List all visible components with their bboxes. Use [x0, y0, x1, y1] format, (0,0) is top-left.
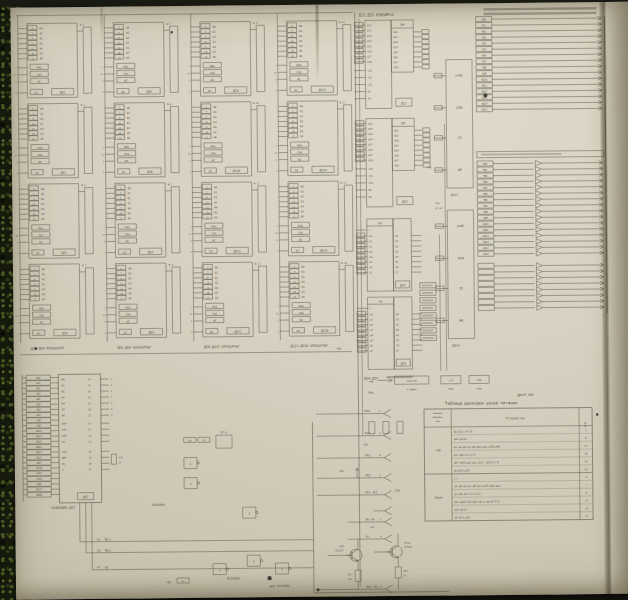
pin-label: АД0	[36, 377, 41, 380]
ctrl-label: ВИР	[62, 435, 67, 438]
ctrl-row-label: CE	[459, 286, 463, 290]
di-pin-label: DI	[36, 172, 40, 175]
resistor-value: 15к	[348, 578, 353, 581]
chip-Д516: 5А07А16А212А311А410А513А64RAS15CAS3WE2DI…	[275, 261, 353, 336]
ctrl-pin-label: WE	[212, 240, 216, 243]
pin-label: А5	[127, 132, 131, 135]
pin-number: 2	[190, 251, 192, 254]
table-cell-device: Д44-Д516	[454, 438, 467, 441]
pin-label: АД15	[36, 456, 42, 459]
pin-number: 2	[15, 92, 17, 95]
pin-label: А3	[299, 40, 303, 43]
pin-label: D5	[369, 261, 373, 264]
pin-label: АД3	[36, 393, 41, 396]
pin-label: АД8	[36, 419, 41, 422]
ctrl-row-label: WE	[459, 318, 463, 322]
pin-number: 2	[103, 171, 105, 174]
ctrl-pin-label: RAS	[37, 67, 42, 70]
signal-label: АД4	[482, 42, 487, 45]
pin-number: 19	[97, 548, 101, 552]
capacitor-value: 43мк	[476, 387, 482, 390]
pin-label: А2	[299, 35, 303, 38]
table-cell-contact: 24	[584, 460, 588, 463]
memory-group-1: 5А07А16А212А311А410А513А64RAS15CAS3WE2DI…	[13, 15, 94, 351]
ctrl-pin-label: WE	[212, 159, 216, 162]
ctrl-pin-label: CAS	[298, 232, 303, 235]
xt8-label: ХТ8	[435, 202, 440, 205]
pin-label: А0	[39, 27, 43, 30]
pin-number: 4	[103, 146, 105, 149]
pin-label: D7	[370, 350, 374, 353]
chip-designator: Д513	[319, 88, 326, 92]
clock-pin: С	[369, 229, 371, 232]
pin-number: 2	[16, 172, 18, 175]
ctrl-pin-label: RAS	[299, 305, 304, 308]
pin-number: 4	[16, 147, 18, 150]
chip-Д515: 5А07А16А212А311А410А513А64RAS15CAS3WE2DI…	[275, 181, 353, 256]
transistor-type: КТ315Г	[335, 549, 344, 552]
conn-number: 3	[111, 390, 113, 393]
pin-number: 3	[104, 321, 106, 324]
pin-label: А1	[301, 271, 305, 274]
ctrl-label: ВС	[62, 463, 66, 466]
ctrl-pin-label: CAS	[126, 314, 131, 317]
pin-label: АД6	[36, 409, 41, 412]
memory-group-3: 5А07А16А212А311А410А513А64RAS15CAS3WE2DI…	[187, 13, 268, 349]
pin-number: 3	[277, 319, 279, 322]
pin-label: СИНХ	[36, 478, 42, 481]
pin-label: Q1	[395, 240, 398, 243]
pin-label: А6	[126, 57, 130, 60]
pin-number: 3	[103, 160, 105, 163]
table-header: Устройство	[505, 416, 524, 420]
bus-number: № 3	[82, 184, 87, 187]
di-pin-label: DI	[209, 170, 213, 173]
pin-label: DO8	[394, 66, 399, 69]
pin-label: Q4	[396, 334, 399, 337]
table-header: ния	[436, 420, 441, 423]
ctrl-pin-label: WE	[127, 321, 131, 324]
io-buf-line-РД9: РД9	[477, 214, 603, 221]
pin-label: А3	[39, 42, 43, 45]
io-line-АД4: АД4	[476, 39, 602, 45]
pin-label: А6	[301, 216, 305, 219]
table-cell-contact: 12	[585, 499, 589, 502]
table-cell-contact: 14	[584, 445, 588, 448]
pin-label: Q5	[395, 261, 398, 264]
pin-label: АД4	[36, 398, 41, 401]
pin-number: 33	[88, 428, 91, 431]
pin-number: 2	[18, 333, 20, 336]
common-label: Общ.	[368, 391, 374, 395]
table-cell-device: Д51-Д516	[455, 508, 468, 511]
connector-signal-label: Вкл.чб1	[366, 585, 378, 589]
table-cell-device: Е3	[454, 477, 458, 480]
io-buf-line-РД12: РД12	[478, 232, 604, 239]
chip-Д51: 5А07А16А212А311А410А513А64RAS15CAS3WE2DI…	[13, 23, 91, 98]
bus-number: № 6	[167, 103, 172, 106]
pin-label: А4	[42, 288, 46, 291]
pin-label: АД9	[36, 424, 41, 427]
pin-number: 3	[103, 241, 105, 244]
ctrl-pin-label: CS1	[367, 76, 372, 79]
pin-label: А5	[41, 213, 45, 216]
chip-Д513: 5А07А16А212А311А410А513А64RAS15CAS3WE2DI…	[273, 20, 351, 95]
transistor-designator: VT10	[404, 542, 411, 545]
pin-label: А6	[40, 58, 44, 61]
plus5v-label: +5В	[363, 444, 368, 447]
pin-label: DO4	[393, 46, 398, 49]
pin-label: Q0	[395, 235, 398, 238]
pin-label: А0	[61, 378, 65, 381]
pin-label: А0	[42, 268, 46, 271]
capacitor-name: С50	[477, 379, 482, 382]
ctrl-pin-label: EW	[369, 196, 373, 199]
pin-label: А1	[127, 192, 131, 195]
gate-symbol: 1	[248, 512, 250, 516]
pin-label: DO3	[393, 41, 398, 44]
pin-label: D0	[369, 235, 373, 238]
pin-label: D1	[370, 318, 374, 321]
pin-label: D7	[369, 272, 373, 275]
chip-Д53: 5А07А16А212А311А410А513А64RAS15CAS3WE2DI…	[15, 183, 93, 258]
bus-number: № 1	[80, 23, 85, 26]
pin-label: D1	[369, 240, 373, 243]
ctrl-pin-label: CS1	[368, 175, 373, 178]
ctrl-pin-label: CAS	[297, 151, 302, 154]
signal-label: РД6	[483, 199, 488, 202]
pin-label: А5	[128, 293, 132, 296]
capacitor-name: С49	[449, 379, 454, 382]
chip-designator: Д52	[61, 171, 67, 175]
pin-label: А2	[213, 36, 217, 39]
pin-number: 15	[187, 72, 190, 75]
signal-label: АД7	[482, 60, 487, 63]
chip-Д54: 5А07А16А212А311А410А513А64RAS15CAS3WE2DI…	[16, 264, 94, 339]
pin-number: 2	[191, 331, 193, 334]
pin-label: DO2	[394, 134, 399, 137]
pin-label: А3	[128, 202, 132, 205]
chip-designator: Д24	[400, 283, 406, 287]
ctrl-pin-label: WE	[125, 160, 129, 163]
capacitor-value: 0,068мк	[407, 388, 418, 391]
pin-number: 3	[15, 81, 17, 84]
misc-label: РС-Р4	[435, 207, 443, 210]
connector-signal-label: РЕЗ	[365, 431, 370, 435]
pin-label: DI5	[367, 45, 372, 48]
pin-label: А3	[301, 281, 305, 284]
bus-number: № 4	[82, 264, 87, 267]
table-header: Конт.	[584, 420, 587, 427]
gate-symbol: 1	[190, 462, 192, 466]
pin-label: DO1	[394, 129, 399, 132]
pin-label: D2	[369, 245, 373, 248]
pin-number: 47	[97, 566, 101, 570]
pin-label: А4	[213, 126, 217, 129]
ctrl-pin-label: CAS	[124, 153, 129, 156]
pin-number: 23	[88, 402, 91, 405]
io-buf-line-РД8: РД8	[477, 208, 603, 215]
pin-number: 37	[89, 468, 92, 471]
pin-label: А6	[214, 216, 218, 219]
di-pin-label: DI	[35, 92, 39, 95]
ctrl-pin-label: CLR	[367, 69, 372, 72]
chip-designator: Д22	[401, 101, 407, 105]
pin-label: А2	[300, 115, 304, 118]
pin-label: АД12	[36, 440, 42, 443]
chip-designator: Д56	[147, 170, 153, 174]
di-pin-label: DI	[122, 171, 126, 174]
table-cell-contact: 7	[585, 484, 587, 487]
cpu-caption: К1801ВМ1-Д27	[51, 506, 75, 510]
pin-number: 4	[104, 307, 106, 310]
ctrl-row-label: CE	[458, 136, 462, 140]
pin-number: 25	[88, 414, 91, 417]
pin-number: 2	[102, 91, 104, 94]
pin-label: А6	[41, 218, 45, 221]
chip-designator: Д511	[234, 249, 241, 253]
io-line-АД0: АД0	[476, 15, 602, 21]
pin-label: А3	[41, 203, 45, 206]
func-label: INP	[400, 24, 405, 27]
di-pin-label: DI	[36, 252, 40, 255]
chip-designator: Д518	[453, 344, 460, 348]
pin-label: А2	[214, 196, 218, 199]
signal-label: РД10	[483, 223, 489, 226]
table-cell-device: Д2,Д11,Е4-Е9	[454, 430, 473, 433]
pin-label: А6	[62, 415, 66, 418]
pin-label: А5	[301, 211, 305, 214]
io-buf-line-x7	[478, 304, 604, 311]
signal-label: РД8	[483, 211, 488, 214]
paper-crease-2	[100, 7, 102, 47]
pin-label: А5	[62, 409, 66, 412]
cpu-block: АД0АД1АД2АД3АД4АД5АД6АД7АД8АД9АД10АД11АД…	[22, 372, 314, 570]
pin-label: А6	[299, 55, 303, 58]
pin-number: 2	[104, 252, 106, 255]
io-line-АД14: АД14	[476, 100, 602, 106]
bus-number: № 10	[253, 102, 259, 105]
pin-label: А6	[127, 137, 131, 140]
memory-group-caption: Д513-Д516 КР565РУ6Г	[290, 344, 328, 348]
pin-number: 42	[88, 440, 91, 443]
pin-number: 4	[103, 227, 105, 230]
signal-label: ТШ	[104, 565, 108, 569]
ctrl-pin-label: CLR	[368, 168, 373, 171]
pin-number: 4	[18, 308, 20, 311]
bus-number: № 8	[169, 263, 174, 266]
ctrl-pin-label: WE	[38, 81, 42, 84]
signal-label: РД5	[483, 193, 488, 196]
signal-label: АД5	[482, 48, 487, 51]
di-pin-label: DI	[37, 333, 41, 336]
plus5v-label: +5В	[368, 379, 373, 383]
resistor-label: R57	[348, 573, 353, 576]
pin-label: А4	[127, 127, 131, 130]
bus-number: № 9	[253, 22, 258, 25]
pin-label: А0	[213, 106, 217, 109]
pin-label: А4	[62, 403, 66, 406]
pin-number: 3	[17, 241, 19, 244]
pin-number: 4	[15, 67, 17, 70]
pin-label: А2	[39, 37, 43, 40]
logic-caption: К155ЛН3	[227, 576, 240, 580]
io-line-АД10: АД10	[476, 76, 602, 82]
pin-label: А3	[42, 283, 46, 286]
pin-number: 4	[277, 305, 279, 308]
ctrl-row-label: SYNC	[457, 224, 465, 228]
signal-label: РД3	[483, 181, 488, 184]
bus-number: № 13	[339, 21, 345, 24]
ctrl-label: ОЕ	[62, 441, 66, 444]
memory-group-2: 5А07А16А212А311А410А513А64RAS15CAS3WE2DI…	[100, 14, 181, 350]
connector-signal-label: Вн.чб	[366, 517, 375, 521]
table-cell-device: Д1,Д3,Д5-Д7,Д9-Д14,Д19,Д20,Д44	[454, 485, 501, 488]
pin-label: АД13	[36, 446, 42, 449]
pin-number: 2	[276, 170, 278, 173]
conn-number: 5	[111, 402, 113, 405]
pin-label: А1	[213, 111, 217, 114]
pin-label: А0	[214, 186, 218, 189]
pin-number: 4	[188, 65, 190, 68]
pin-label: DO8	[394, 165, 399, 168]
part-label: R16	[188, 439, 193, 442]
connector-signal-label: РЕЗ	[365, 453, 370, 457]
plus5v-label: +5В	[339, 470, 344, 473]
io-buf-line-x4	[478, 286, 604, 293]
io-buf-line-РД1: РД1	[477, 166, 603, 173]
signal-label: АД14	[482, 102, 488, 105]
table-cell-contact: 16	[585, 507, 589, 510]
chip-designator: Д515	[320, 248, 327, 252]
pin-label: ВИР	[37, 462, 42, 465]
pin-label: АД7	[36, 414, 41, 417]
pin-label: DI7	[367, 56, 372, 59]
bus-number: № 5	[167, 23, 172, 26]
pin-label: А4	[299, 45, 303, 48]
pin-label: А0	[301, 185, 305, 188]
pin-label: DO5	[394, 149, 399, 152]
pin-label: DI4	[368, 138, 373, 141]
plus5v-label: +5В	[370, 526, 375, 529]
pin-label: DI3	[367, 35, 372, 38]
pin-label: DO5	[393, 51, 398, 54]
pin-label: ВЫВД	[36, 494, 42, 497]
pin-label: Q5	[396, 339, 399, 342]
pin-number: 3	[379, 432, 381, 435]
pin-label: Q7	[396, 350, 399, 353]
table-cell-device: Д4,Д14,Д19	[454, 469, 470, 472]
pin-label: А0	[212, 26, 216, 29]
signal-label: РД1	[483, 169, 488, 172]
pin-label: А0	[127, 187, 131, 190]
chip-Д512: 5А07А16А212А311А410А513А64RAS15CAS3WE2DI…	[189, 262, 267, 337]
pin-label: А3	[61, 397, 65, 400]
chip-designator: Д51	[60, 90, 66, 94]
table-cell-contact: 42	[585, 468, 589, 471]
io-buf-line-РД15: РД15	[478, 250, 604, 257]
func-label: RG	[378, 221, 382, 225]
pin-number: 30	[89, 462, 92, 465]
ctrl-pin-label: RAS	[297, 64, 302, 67]
pin-label: DI8	[368, 159, 373, 162]
pin-label: DI1	[367, 24, 372, 27]
voltage-group-label: Общий	[434, 495, 442, 499]
pin-number: 15	[16, 315, 19, 318]
pin-label: А4	[128, 287, 132, 290]
table-header: Номинал	[433, 412, 443, 415]
pin-label: Q1	[396, 318, 399, 321]
signal-label: АД12	[481, 90, 487, 93]
logic-caption: Д41 К155ЛН3	[270, 584, 290, 588]
pin-label: А2	[128, 277, 132, 280]
pin-label: А3	[214, 201, 218, 204]
ctrl-pin-label: WE	[300, 319, 304, 322]
bus-number: № 11	[254, 182, 260, 185]
pin-label: А1	[127, 112, 131, 115]
pin-number: 3	[191, 320, 193, 323]
connector-designator: ХТ5	[395, 489, 401, 493]
chip-Д510: 5А07А16А212А311А410А513А64RAS15CAS3WE2DI…	[187, 102, 265, 177]
pin-number: 3	[18, 322, 20, 325]
pin-number: 4	[189, 145, 191, 148]
pin-number: 15	[274, 71, 277, 74]
ctrl-pin-label: WE	[298, 158, 302, 161]
di-pin-label: DI	[124, 332, 128, 335]
pin-number: 3	[276, 159, 278, 162]
signal-label: РД9	[483, 217, 488, 220]
chip-Д52: 5А07А16А212А311А410А513А64RAS15CAS3WE2DI…	[14, 103, 92, 178]
pin-label: АД14	[36, 451, 42, 454]
chip-designator: Д512	[234, 330, 241, 334]
pin-label: А0	[126, 27, 130, 30]
part-label: С8	[202, 439, 205, 442]
part-label: Д7.2	[221, 431, 228, 434]
ctrl-pin-label: CAS	[210, 72, 215, 75]
pin-label: Q3	[396, 329, 399, 332]
pin-number: 3	[16, 161, 18, 164]
bus-number: № 7	[168, 183, 173, 186]
conn-number: 6	[111, 408, 113, 411]
di-pin-label: DI	[295, 169, 299, 172]
ctrl-pin-label: CAS	[125, 233, 130, 236]
pin-label: А5	[128, 212, 132, 215]
pin-label: А1	[215, 272, 219, 275]
pin-label: D5	[370, 339, 374, 342]
pin-label: А4	[126, 47, 130, 50]
ctrl-pin-label: RAS	[211, 145, 216, 148]
ctrl-pin-label: WE	[124, 80, 128, 83]
pin-label: DI6	[368, 149, 373, 152]
pin-label: А5	[42, 293, 46, 296]
pin-number: 2	[379, 474, 381, 477]
pin-number: 3	[277, 239, 279, 242]
di-pin-label: DI	[295, 89, 299, 92]
ctrl-pin-label: MD	[368, 91, 372, 94]
table-cell-device: Д7,Д8,Д12,ХТ1,ХТ2	[454, 493, 481, 496]
pin-label: А1	[42, 273, 46, 276]
pin-label: А1	[40, 113, 44, 116]
io-buf-line-РД14: РД14	[478, 244, 604, 251]
pin-label: А4	[300, 125, 304, 128]
pin-label: А5	[126, 52, 130, 55]
schematic-paper-sheet: 5А07А16А212А311А410А513А64RAS15CAS3WE2DI…	[10, 2, 628, 600]
ctrl-pin-label: CAS	[39, 314, 44, 317]
pin-label: А6	[215, 297, 219, 300]
pin-label: А0	[41, 188, 45, 191]
func-label: RG	[379, 300, 383, 304]
io-buf-line-РД4: РД4	[477, 184, 603, 191]
